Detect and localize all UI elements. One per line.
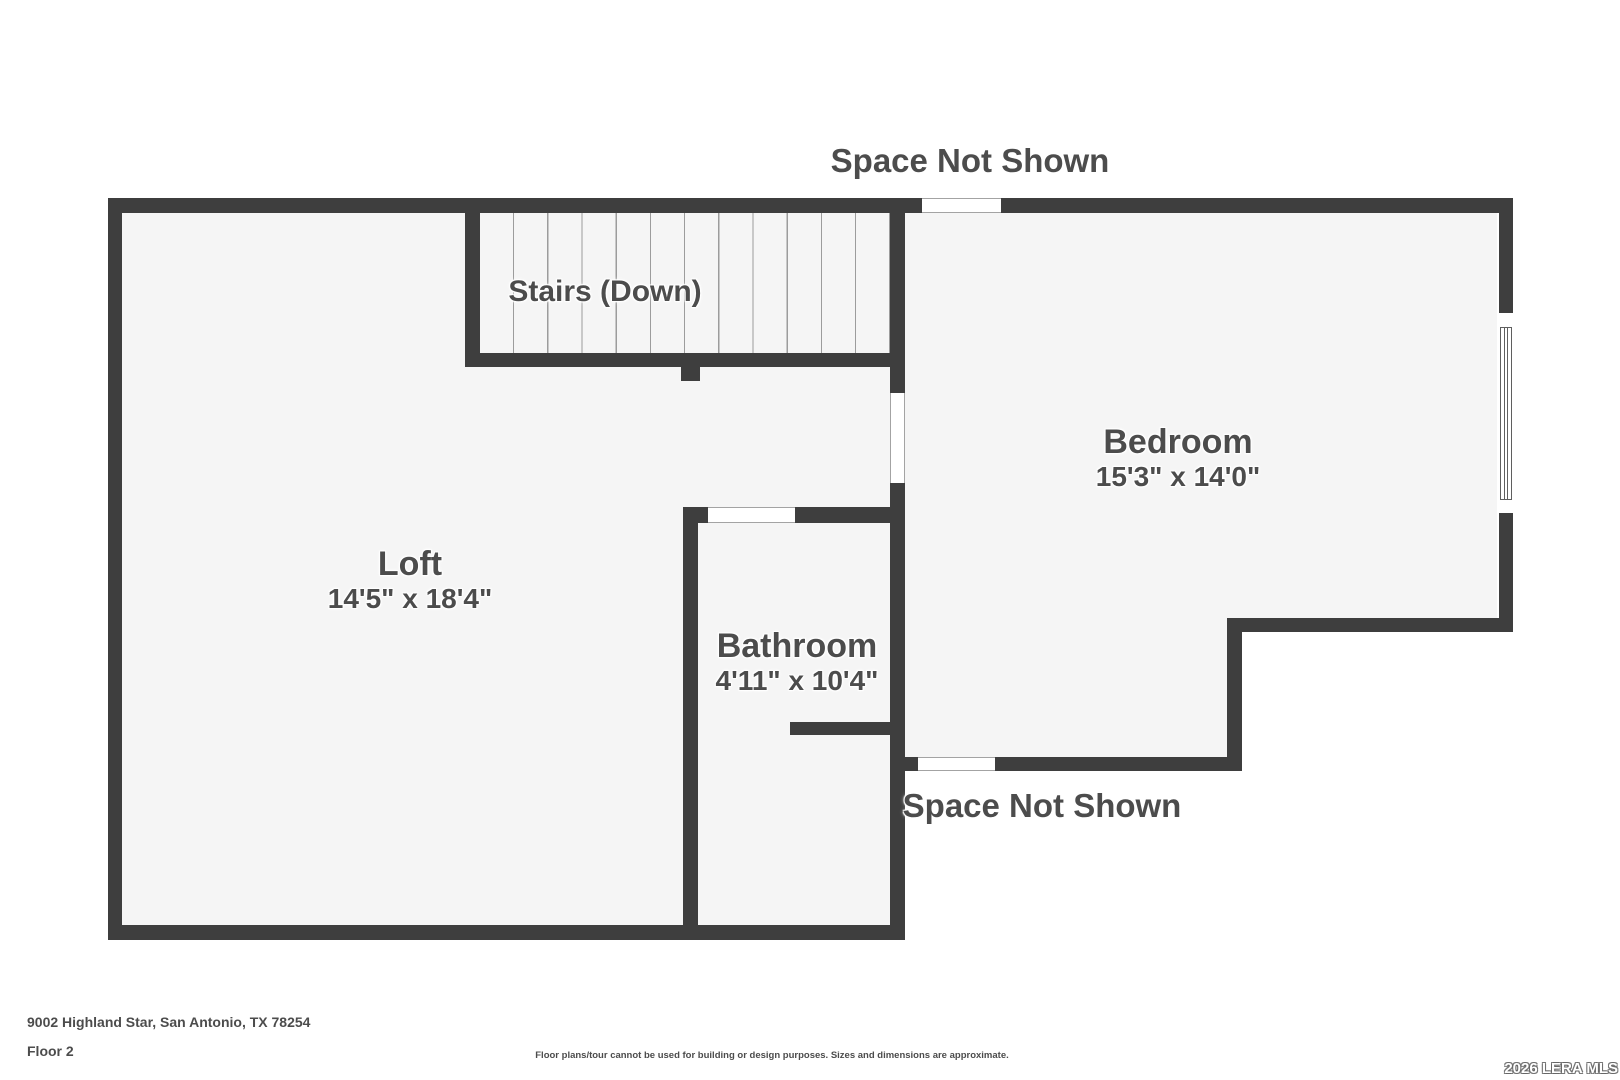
bathroom-name: Bathroom	[716, 627, 879, 665]
bedroom-label: Bedroom 15'3" x 14'0"	[1096, 423, 1260, 493]
space-not-shown-top-label: Space Not Shown	[831, 142, 1110, 180]
opening-top-wall	[922, 198, 1001, 213]
space-not-shown-bottom-label: Space Not Shown	[903, 787, 1182, 825]
bathroom-door-opening	[708, 507, 795, 523]
bedroom-dimensions: 15'3" x 14'0"	[1096, 461, 1260, 493]
mls-watermark: 2026 LERA MLS	[1504, 1060, 1618, 1077]
loft-label: Loft 14'5" x 18'4"	[328, 545, 492, 615]
bedroom-name: Bedroom	[1096, 423, 1260, 461]
opening-lower-wall	[918, 757, 995, 771]
wall-bedroom-notch	[1227, 618, 1242, 771]
wall-divider-lower	[890, 483, 905, 940]
wall-left	[108, 198, 122, 940]
bedroom-door-opening	[890, 393, 905, 483]
disclaimer-text: Floor plans/tour cannot be used for buil…	[535, 1050, 1009, 1061]
property-address: 9002 Highland Star, San Antonio, TX 7825…	[27, 1014, 310, 1030]
wall-bathroom-left	[683, 507, 698, 940]
bedroom-area-lower	[905, 618, 1227, 757]
floor-label: Floor 2	[27, 1043, 74, 1059]
wall-stair-stub	[681, 367, 700, 381]
wall-bathroom-half	[790, 722, 902, 735]
bathroom-label: Bathroom 4'11" x 10'4"	[716, 627, 879, 697]
wall-bottom	[108, 925, 905, 940]
bedroom-area-upper	[905, 213, 1497, 618]
wall-stairs-bottom	[465, 353, 905, 367]
floorplan-page: Space Not Shown Space Not Shown Stairs (…	[0, 0, 1620, 1080]
stairs-label: Stairs (Down)	[508, 275, 701, 309]
wall-bedroom-bottom-right	[1227, 618, 1513, 632]
wall-top	[108, 198, 1513, 213]
wall-stairs-left	[465, 198, 480, 367]
loft-name: Loft	[328, 545, 492, 583]
loft-dimensions: 14'5" x 18'4"	[328, 583, 492, 615]
window-center-line	[1504, 328, 1508, 499]
bathroom-dimensions: 4'11" x 10'4"	[716, 665, 879, 697]
